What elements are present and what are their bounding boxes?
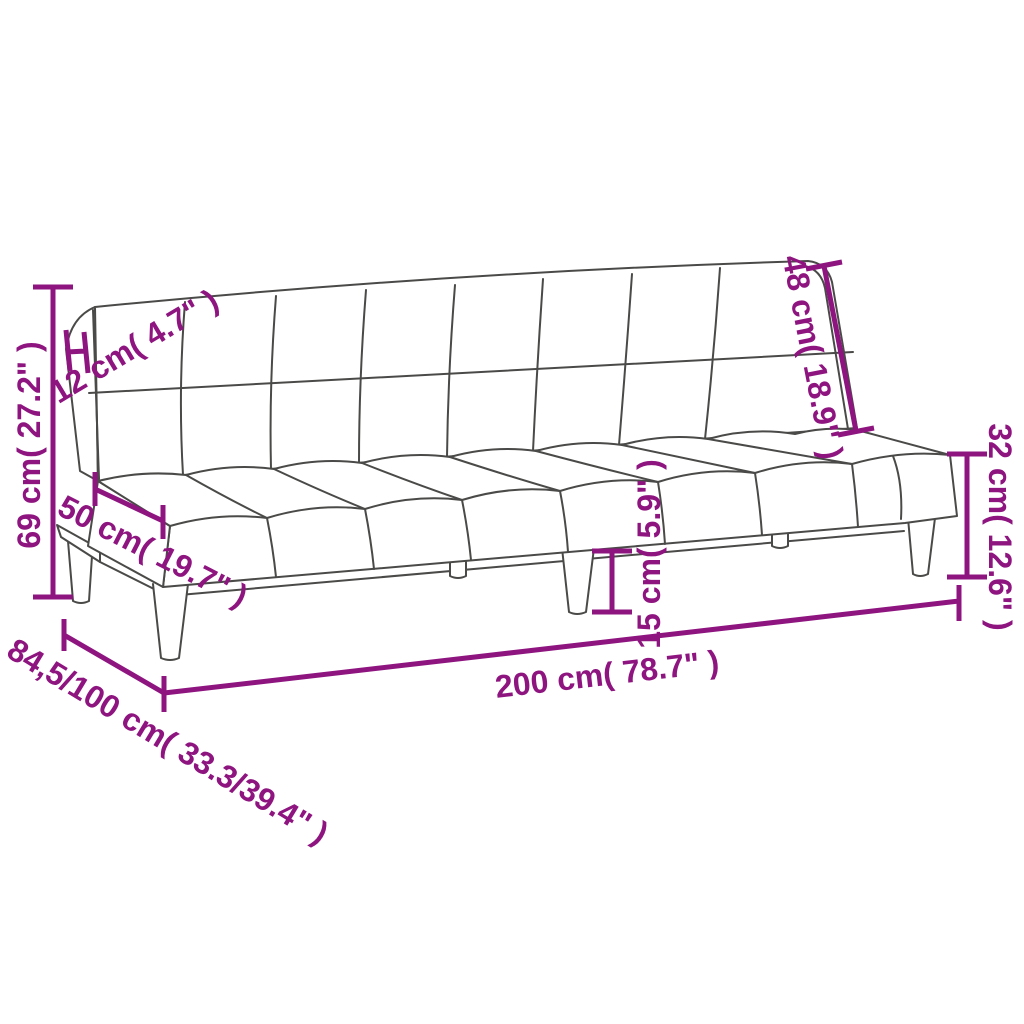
dimension-diagram-canvas: 69 cm( 27.2" ) 12 cm( 4.7" ) 50 cm( 19.7…	[0, 0, 1024, 1024]
dimension-label-seat-height: 32 cm( 12.6" )	[982, 423, 1018, 630]
dimension-label-leg-height: 15 cm( 5.9" )	[631, 459, 667, 648]
sofa-leg-front-right	[908, 518, 935, 576]
sofa-leg-front-left	[153, 584, 188, 660]
dimension-line-leg-height	[592, 551, 632, 612]
sofa-leg-front-middle	[562, 548, 594, 614]
dimension-label-overall-height: 69 cm( 27.2" )	[11, 341, 47, 548]
dimension-label-overall-depth: 84,5/100 cm( 33.3/39.4" )	[1, 631, 334, 851]
